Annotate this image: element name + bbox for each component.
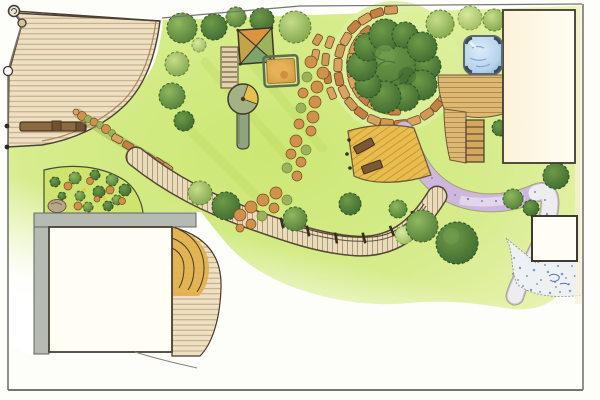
garage-building: outbuilding with gray walls [34, 213, 197, 368]
fence-post [4, 67, 13, 76]
main-house: main house [503, 10, 575, 163]
deck-bench: deck bench [20, 121, 86, 131]
hot-tub: hot tub on deck [464, 36, 502, 74]
garden-plan-canvas: lawn wooden deck terrace deck bench [0, 0, 600, 400]
fence-post-dot [5, 145, 10, 150]
garden-plan-drawing: lawn wooden deck terrace deck bench [0, 0, 600, 400]
garden-pavilion-slab: garden pavilion slab [532, 216, 577, 261]
sandbox: sandbox [263, 55, 299, 87]
play-ladder: play ladder [221, 47, 238, 88]
house-steps [466, 120, 484, 162]
fence-post-dot [5, 124, 10, 129]
fence-post-spiral [9, 6, 20, 17]
fence-post [18, 19, 26, 27]
